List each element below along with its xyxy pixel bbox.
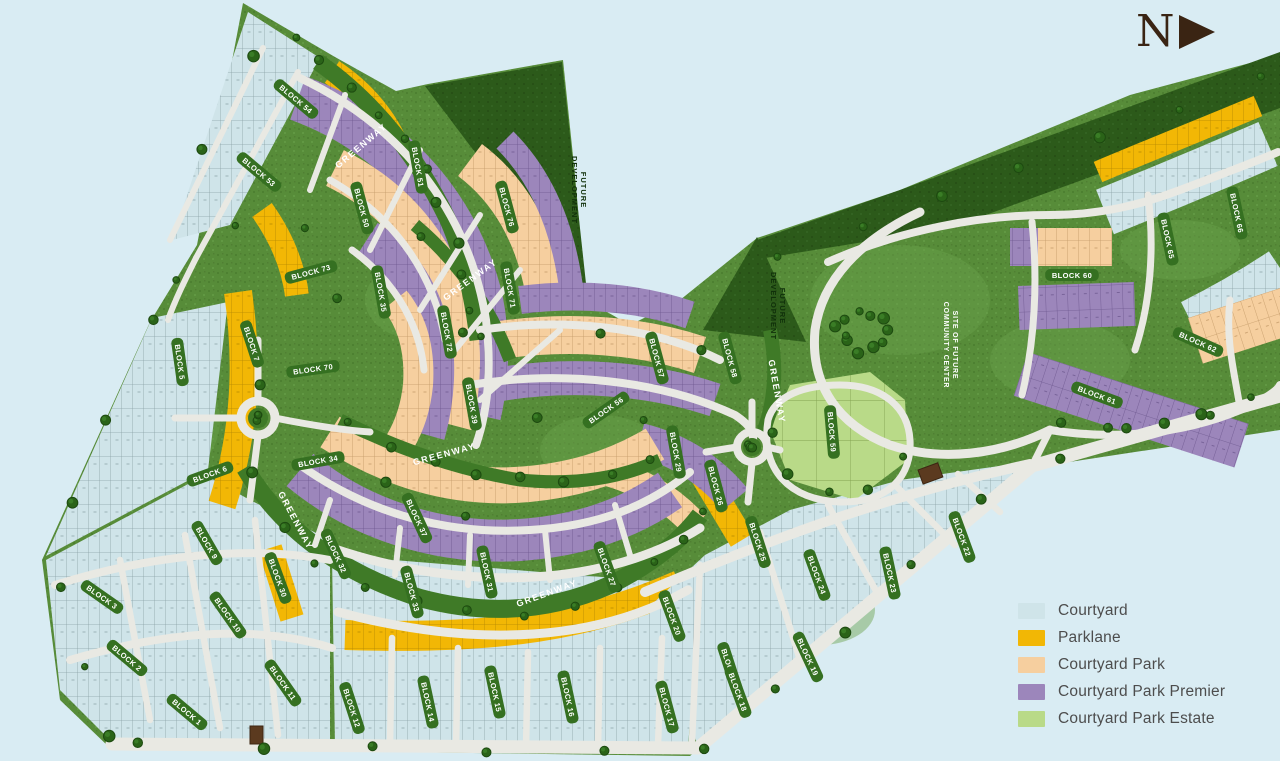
future-label-line2: DEVELOPMENT [570,156,579,224]
tree-icon [417,233,425,241]
tree-icon [863,485,872,494]
tree-icon [840,315,849,324]
tree-icon [1159,418,1169,428]
tree-icon [82,663,88,669]
tree-icon [1122,424,1132,434]
tree-icon [471,470,481,480]
tree-icon [700,508,707,515]
tree-icon [361,583,369,591]
legend-label-parklane: Parklane [1058,629,1121,647]
tree-icon [748,443,757,452]
tree-icon [651,558,658,565]
tree-icon [56,583,65,592]
tree-icon [640,417,647,424]
tree-icon [768,428,777,437]
tree-icon [458,328,467,337]
future-label-line1: FUTURE [778,288,787,324]
site-label-line2: COMMUNITY CENTER [942,302,949,389]
tree-icon [699,744,708,753]
tree-icon [1056,454,1065,463]
tree-icon [532,413,542,423]
tree-icon [1206,411,1214,419]
tree-icon [133,738,142,747]
tree-icon [1014,163,1024,173]
legend-row-courtyard-park-premier: Courtyard Park Premier [1018,678,1225,705]
legend: Courtyard Parklane Courtyard Park Courty… [1018,597,1225,732]
tree-icon [197,144,207,154]
tree-icon [255,411,262,418]
legend-swatch-courtyard [1018,603,1045,619]
legend-label-courtyard-park: Courtyard Park [1058,656,1165,674]
tree-icon [149,315,158,324]
tree-icon [976,494,986,504]
tree-icon [463,606,472,615]
tree-icon [937,191,948,202]
legend-row-courtyard: Courtyard [1018,597,1225,624]
tree-icon [247,467,258,478]
tree-icon [375,112,382,119]
block-label: BLOCK 60 [1045,269,1099,281]
tree-icon [368,742,377,751]
legend-row-parklane: Parklane [1018,624,1225,651]
tree-icon [852,348,863,359]
tree-icon [101,415,111,425]
tree-icon [248,50,260,62]
tree-icon [571,602,579,610]
tree-icon [868,341,879,352]
legend-swatch-parklane [1018,630,1045,646]
tree-icon [840,627,851,638]
tree-icon [454,238,464,248]
legend-label-courtyard: Courtyard [1058,602,1128,620]
tree-icon [782,469,793,480]
tree-icon [258,743,269,754]
tree-icon [842,332,849,339]
future-label-line1: FUTURE [579,172,588,208]
tree-icon [333,294,342,303]
block-label-text: BLOCK 60 [1052,271,1092,280]
tree-icon [431,197,441,207]
tree-icon [381,477,391,487]
tree-icon [1094,132,1105,143]
tree-icon [558,477,568,487]
tree-icon [826,488,834,496]
tree-icon [883,325,893,335]
legend-row-courtyard-park: Courtyard Park [1018,651,1225,678]
tree-icon [466,307,473,314]
future-development-label: FUTUREDEVELOPMENT [570,156,588,224]
tree-icon [878,312,890,324]
tree-icon [600,746,609,755]
legend-label-courtyard-park-estate: Courtyard Park Estate [1058,710,1215,728]
legend-swatch-courtyard-park-estate [1018,711,1045,727]
tree-icon [900,453,907,460]
tree-icon [280,522,290,532]
future-label-line2: DEVELOPMENT [769,272,778,340]
tree-icon [771,685,779,693]
tree-icon [1104,423,1113,432]
tree-icon [856,308,863,315]
tree-icon [478,333,485,340]
tree-icon [609,470,617,478]
legend-swatch-courtyard-park-premier [1018,684,1045,700]
tree-icon [462,512,470,520]
tree-icon [387,442,397,452]
north-label: N [1136,10,1175,54]
tree-icon [314,55,323,64]
tree-icon [311,560,318,567]
legend-swatch-courtyard-park [1018,657,1045,673]
tree-icon [520,612,528,620]
tree-icon [859,223,867,231]
tree-icon [774,253,781,260]
tree-icon [515,472,525,482]
north-indicator: N [1136,10,1215,54]
tree-icon [482,748,491,757]
north-arrow-icon [1179,15,1215,49]
tree-icon [878,338,887,347]
legend-label-courtyard-park-premier: Courtyard Park Premier [1058,683,1225,701]
tree-icon [907,561,915,569]
site-label-line1: SITE OF FUTURE [951,311,958,380]
tree-icon [401,135,408,142]
tree-icon [1248,394,1255,401]
tree-icon [255,380,265,390]
tree-icon [344,419,351,426]
tree-icon [1196,409,1207,420]
tree-icon [866,311,875,320]
tree-icon [232,222,238,228]
tree-icon [1257,73,1264,80]
tree-icon [646,456,654,464]
tree-icon [347,83,356,92]
tree-icon [697,346,706,355]
tree-icon [1176,106,1183,113]
tree-icon [103,730,115,742]
tree-icon [596,329,605,338]
tree-icon [829,321,840,332]
tree-icon [301,225,308,232]
tree-icon [679,535,688,544]
tree-icon [293,34,300,41]
tree-icon [173,277,180,284]
legend-row-courtyard-park-estate: Courtyard Park Estate [1018,705,1225,732]
tree-icon [67,497,78,508]
tree-icon [1056,418,1065,427]
